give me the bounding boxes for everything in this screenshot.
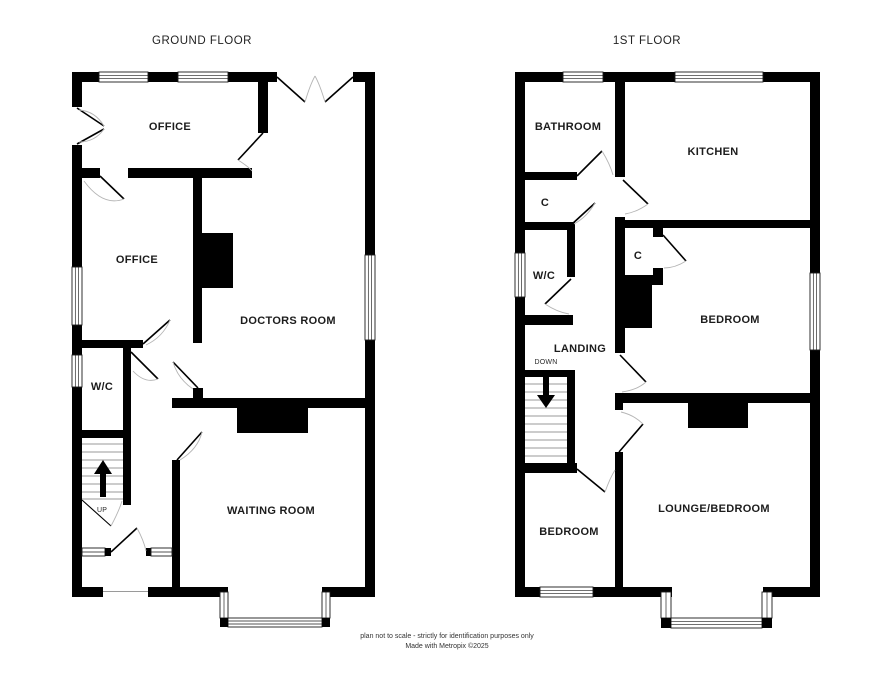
ff-top-window-kitchen (675, 72, 763, 82)
ff-bedroom-front-door (577, 469, 615, 492)
gf-left-window-wc (72, 355, 82, 387)
ff-room-labels: BATHROOM KITCHEN C W/C C BEDROOM LANDING… (533, 121, 770, 538)
gf-waiting-room-door (177, 432, 202, 460)
gf-left-window-office (72, 267, 82, 325)
ff-cupboard-right-door (663, 235, 686, 268)
ff-landing-label: LANDING (554, 343, 606, 355)
gf-wc-label: W/C (91, 381, 113, 393)
ff-fireplace (688, 403, 748, 428)
ff-top-window-bathroom (563, 72, 603, 82)
gf-office-corridor-door (143, 320, 170, 345)
ground-floor-plan: GROUND FLOOR (72, 35, 375, 627)
ff-bedroom-front-label: BEDROOM (539, 526, 599, 538)
gf-doctors-room-label: DOCTORS ROOM (240, 315, 336, 327)
gf-wc-door (131, 352, 158, 380)
ff-bedroom-door (620, 355, 646, 392)
ff-wc-label: W/C (533, 270, 555, 282)
gf-office-mid-label: OFFICE (116, 254, 158, 266)
gf-exterior-walls (72, 72, 375, 597)
ff-bedroom-label: BEDROOM (700, 314, 760, 326)
ff-cupboard-right-label: C (634, 250, 642, 262)
gf-interior-walls (82, 82, 365, 597)
gf-up-arrow (94, 460, 112, 497)
gf-office-top-label: OFFICE (149, 121, 191, 133)
ff-bathroom-label: BATHROOM (535, 121, 601, 133)
footer-line-2: Made with Metropix ©2025 (405, 642, 488, 650)
ff-stairs-direction-label: DOWN (535, 359, 558, 366)
gf-fireplace (237, 403, 308, 433)
first-floor-title: 1ST FLOOR (613, 35, 681, 47)
gf-sidelight-right (151, 548, 172, 556)
gf-bay-window (220, 592, 330, 627)
gf-top-window-2 (178, 72, 228, 82)
gf-sidelight-left (82, 548, 105, 556)
ff-right-window-bedroom (810, 273, 820, 350)
footer-disclaimer: plan not to scale - strictly for identif… (360, 633, 534, 650)
gf-office-to-doctors-door (238, 133, 263, 171)
gf-stairs-direction-label: UP (97, 507, 107, 514)
gf-waiting-room-label: WAITING ROOM (227, 505, 315, 517)
ff-down-arrow (537, 375, 555, 408)
gf-front-door-partition (82, 528, 172, 556)
ff-cupboard-left-label: C (541, 197, 549, 209)
ff-bottom-window-bedroom (540, 587, 593, 597)
ff-exterior-walls (515, 72, 820, 597)
ff-cupboard-left-door (571, 203, 595, 225)
ff-kitchen-label: KITCHEN (688, 146, 739, 158)
gf-doctors-room-door (173, 362, 198, 389)
gf-top-window-1 (99, 72, 148, 82)
ff-kitchen-door (623, 180, 648, 214)
ff-wc-door (545, 279, 571, 314)
ff-chimney-breast (622, 285, 652, 328)
gf-right-window-doctors (365, 255, 375, 340)
ff-lounge-bedroom-label: LOUNGE/BEDROOM (658, 503, 770, 515)
footer-line-1: plan not to scale - strictly for identif… (360, 633, 534, 640)
ff-lounge-door (619, 412, 643, 452)
ff-bay-window (661, 592, 772, 628)
ground-floor-title: GROUND FLOOR (152, 35, 252, 47)
floorplan-canvas: GROUND FLOOR (0, 0, 886, 698)
gf-chimney-breast (202, 233, 233, 288)
gf-windows (72, 72, 375, 387)
ff-windows (515, 72, 820, 597)
first-floor-plan: 1ST FLOOR (515, 35, 820, 628)
ff-bathroom-door (577, 151, 613, 176)
gf-office-to-office-door (84, 176, 124, 201)
ff-interior-walls (515, 82, 820, 597)
ff-left-window-wc (515, 253, 525, 297)
